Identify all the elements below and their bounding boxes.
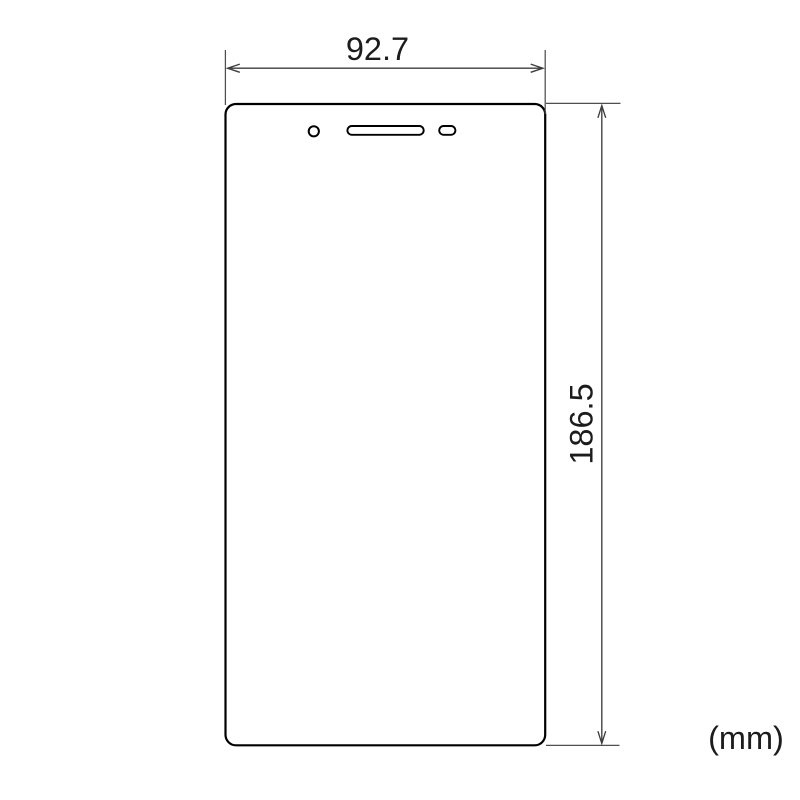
- svg-text:92.7: 92.7: [346, 31, 409, 67]
- svg-text:186.5: 186.5: [564, 383, 600, 464]
- svg-text:(mm): (mm): [708, 720, 784, 756]
